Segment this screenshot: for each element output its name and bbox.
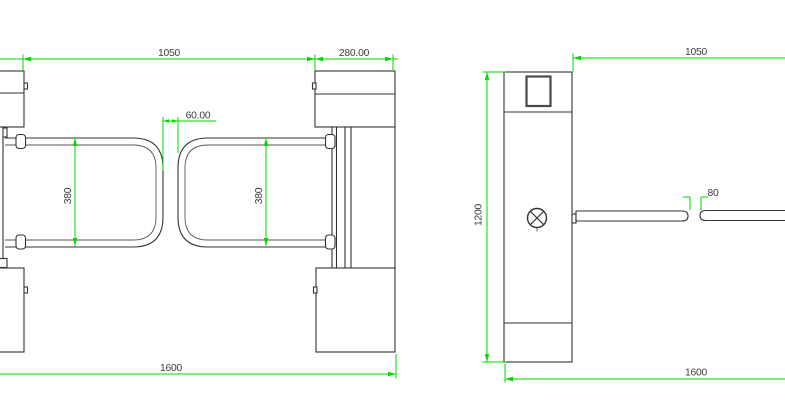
side-view: 80 1050 1200 1600 bbox=[474, 47, 785, 383]
cabinet-top-left bbox=[0, 71, 28, 137]
dim-label-plan-overall-length: 1600 bbox=[160, 363, 183, 374]
dim-label-arm-right-width: 380 bbox=[254, 187, 265, 204]
right-post-column-outer bbox=[345, 127, 351, 268]
housing-left-post bbox=[0, 127, 3, 268]
cabinet-bottom-right bbox=[314, 268, 396, 352]
dimension-cabinet-height: 1200 bbox=[474, 72, 507, 362]
dim-label-arm-tip-gap: 80 bbox=[707, 188, 719, 199]
cad-drawing-canvas: 1050 280.00 60.00 380 380 bbox=[0, 0, 785, 416]
plan-view: 1050 280.00 60.00 380 380 bbox=[0, 48, 398, 379]
dim-label-cabinet-depth: 280.00 bbox=[339, 48, 370, 59]
swing-arm-left bbox=[5, 135, 163, 250]
arm-clamp bbox=[326, 235, 336, 249]
dim-label-arm-gap: 60.00 bbox=[186, 111, 211, 122]
arm-clamp bbox=[16, 235, 26, 249]
dim-label-arm-length: 1050 bbox=[685, 47, 708, 58]
dimension-passage-width: 1050 280.00 bbox=[0, 48, 398, 71]
cabinet-bottom-left bbox=[0, 259, 28, 353]
cabinet-top-right bbox=[313, 71, 396, 127]
dimension-arm-left-width: 380 bbox=[63, 138, 77, 246]
card-reader-window bbox=[527, 77, 551, 107]
dimension-arm-gap: 60.00 bbox=[163, 111, 216, 172]
dim-label-side-overall-length: 1600 bbox=[685, 368, 708, 379]
dimension-plan-overall-length: 1600 bbox=[0, 354, 396, 379]
arm-segment-far bbox=[700, 211, 785, 221]
dimension-arm-tip-gap: 80 bbox=[683, 188, 719, 210]
dimension-arm-right-width: 380 bbox=[254, 138, 268, 246]
dimension-side-overall-length: 1600 bbox=[505, 364, 785, 383]
turnstile-technical-drawing: 1050 280.00 60.00 380 380 bbox=[0, 0, 785, 416]
arm-clamp bbox=[16, 135, 26, 149]
dim-label-arm-left-width: 380 bbox=[63, 187, 74, 204]
dimension-arm-length: 1050 bbox=[573, 47, 785, 72]
dim-label-passage-width: 1050 bbox=[158, 48, 181, 59]
dim-label-cabinet-height: 1200 bbox=[474, 203, 485, 226]
arm-clamp bbox=[326, 135, 336, 149]
arm-hub bbox=[572, 214, 576, 223]
arm-segment-near bbox=[576, 211, 688, 221]
